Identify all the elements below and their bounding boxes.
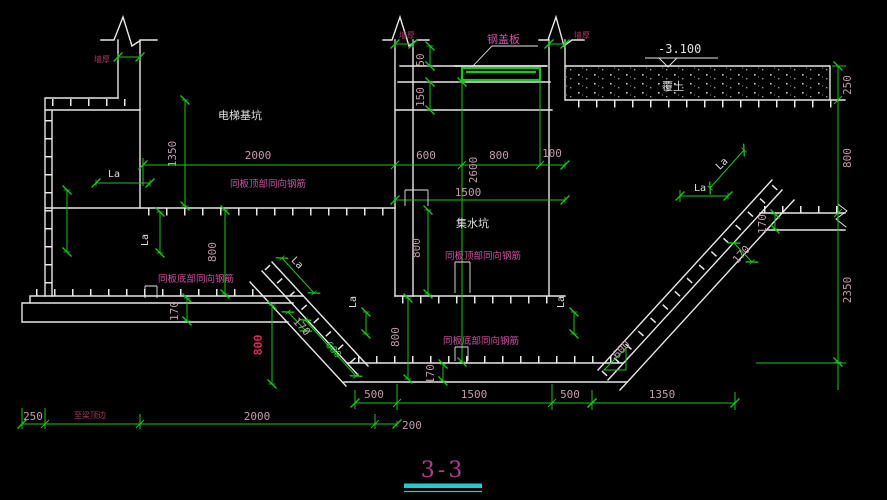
la-sump-right: La bbox=[556, 296, 567, 308]
steel-cover-plate-label: 钢盖板 bbox=[487, 32, 520, 46]
cad-canvas: 墙厚 墙厚 墙厚 钢盖板 -3.100 覆土 电梯基坑 集水坑 同板顶部同向钢筋… bbox=[0, 0, 887, 500]
dim-text-sump-depth: 800 bbox=[410, 238, 423, 258]
section-title: 3-3 bbox=[421, 458, 465, 483]
dim-text-cushion-right: 170 bbox=[756, 214, 769, 234]
break-symbol-left bbox=[101, 17, 157, 46]
dim-text-bottom-mid-seg: 1500 bbox=[461, 388, 488, 401]
dim-text-shaft-depth: 2600 bbox=[467, 157, 480, 184]
dim-text-right-pit-depth: 2350 bbox=[841, 277, 854, 304]
dim-text-cushion-bottom: 170 bbox=[424, 364, 437, 384]
sump-pit-label: 集水坑 bbox=[456, 216, 489, 230]
dim-text-slope-right: 600 bbox=[610, 338, 633, 361]
la-diag-right: La bbox=[714, 156, 730, 172]
elevator-pit-label: 电梯基坑 bbox=[218, 108, 262, 122]
dim-text-plate-left: 600 bbox=[416, 149, 436, 162]
top-rebar-left-bracket bbox=[405, 190, 428, 206]
cover-plate-leader bbox=[472, 46, 538, 67]
dim-text-cushion-diag-right: 170 bbox=[730, 243, 753, 266]
dim-text-sump-wall-drop: 800 bbox=[389, 327, 402, 347]
wall-thickness-label-left: 墙厚 bbox=[94, 54, 110, 64]
la-wall: La bbox=[140, 234, 151, 246]
dim-text-plate-width: 800 bbox=[489, 149, 509, 162]
soil-hatch bbox=[566, 66, 830, 100]
steel-cover-plate bbox=[455, 66, 546, 80]
dim-text-slab-drop-left: 800 bbox=[251, 335, 265, 356]
dim-text-pit-width: 2000 bbox=[245, 149, 272, 162]
bottom-rebar-left-label: 同板底部同向钢筋 bbox=[158, 273, 234, 285]
dim-text-right-slab-depth: 800 bbox=[841, 148, 854, 168]
left-wall bbox=[45, 98, 140, 296]
la-sump-left: La bbox=[348, 296, 359, 308]
wall-thickness-label-mid: 墙厚 bbox=[399, 30, 415, 40]
dim-text-edge-right: 200 bbox=[402, 419, 422, 432]
wall-thickness-label-right: 墙厚 bbox=[574, 30, 590, 40]
title-block: 3-3 bbox=[404, 458, 482, 492]
left-diag-ticks bbox=[267, 267, 359, 367]
soil-cover-label: 覆土 bbox=[662, 80, 684, 93]
top-rebar-sump-label: 同板顶部同向钢筋 bbox=[445, 250, 521, 262]
dim-la-diag-right bbox=[710, 150, 744, 188]
dim-text-pit-depth: 1350 bbox=[166, 141, 179, 168]
section-drawing: 墙厚 墙厚 墙厚 钢盖板 -3.100 覆土 电梯基坑 集水坑 同板顶部同向钢筋… bbox=[0, 0, 887, 500]
la-left: La bbox=[108, 169, 120, 180]
dim-text-slab-thickness: 800 bbox=[206, 242, 219, 262]
top-rebar-left-label: 同板顶部同向钢筋 bbox=[230, 178, 306, 190]
elevation-label: -3.100 bbox=[658, 42, 701, 56]
dim-text-plate-top: 50 bbox=[414, 53, 427, 66]
dim-text-cushion-left: 170 bbox=[168, 301, 181, 321]
la-diag-left: La bbox=[289, 255, 305, 271]
sump-slab-soffit bbox=[344, 363, 627, 382]
dim-text-bottom-width: 2000 bbox=[244, 410, 271, 423]
rebar-ticks bbox=[36, 103, 842, 375]
to-beam-edge-label: 至梁顶边 bbox=[74, 410, 106, 420]
la-right: La bbox=[694, 183, 706, 194]
title-underline-bar bbox=[404, 484, 482, 489]
right-slab-soffit bbox=[760, 213, 845, 230]
dim-text-plate-right: 100 bbox=[542, 147, 562, 160]
dimension-marks bbox=[41, 96, 842, 428]
dim-text-plate-ledge: 150 bbox=[414, 87, 427, 107]
dim-text-bottom-far-right: 1350 bbox=[649, 388, 676, 401]
dim-text-soil-cover: 250 bbox=[841, 75, 854, 95]
dim-text-edge-offset: 250 bbox=[23, 410, 43, 423]
dim-text-sump-width: 1500 bbox=[455, 186, 482, 199]
bottom-rebar-sump-label: 同板底部同向钢筋 bbox=[443, 335, 519, 347]
left-slab-soffit bbox=[22, 296, 303, 322]
dim-text-bottom-left-seg: 500 bbox=[364, 388, 384, 401]
dim-text-bottom-right-seg: 500 bbox=[560, 388, 580, 401]
